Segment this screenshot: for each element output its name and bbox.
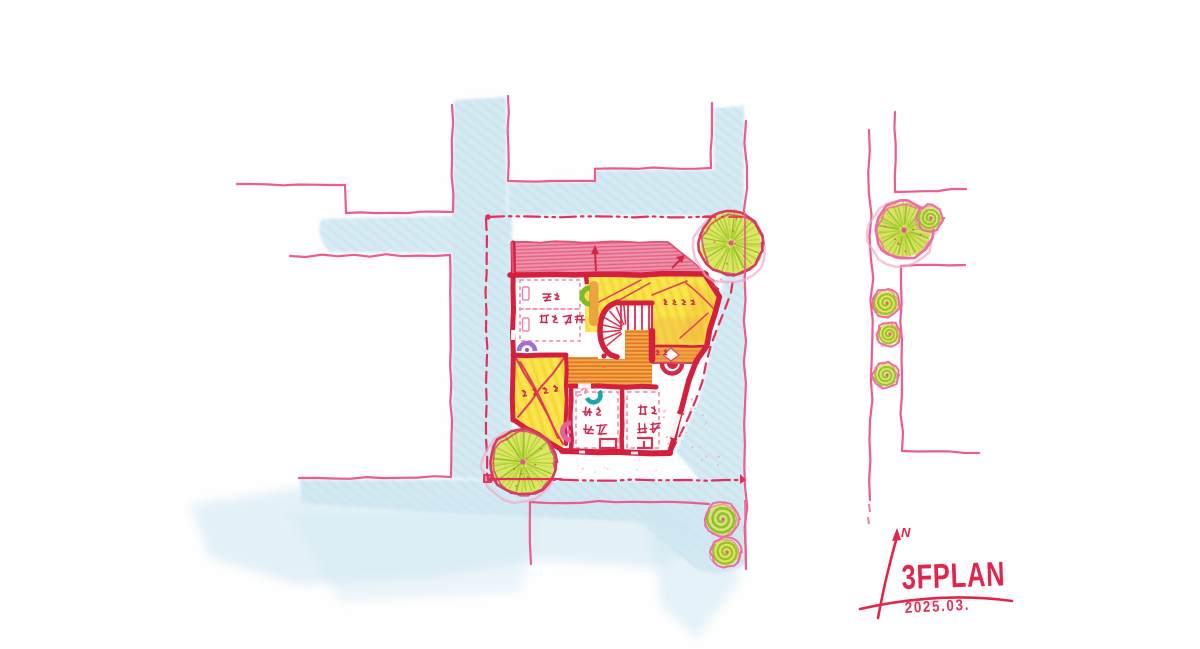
svg-text:2025.03.: 2025.03. <box>904 597 970 617</box>
svg-text:3FPLAN: 3FPLAN <box>901 556 1006 597</box>
svg-text:N: N <box>901 525 911 540</box>
